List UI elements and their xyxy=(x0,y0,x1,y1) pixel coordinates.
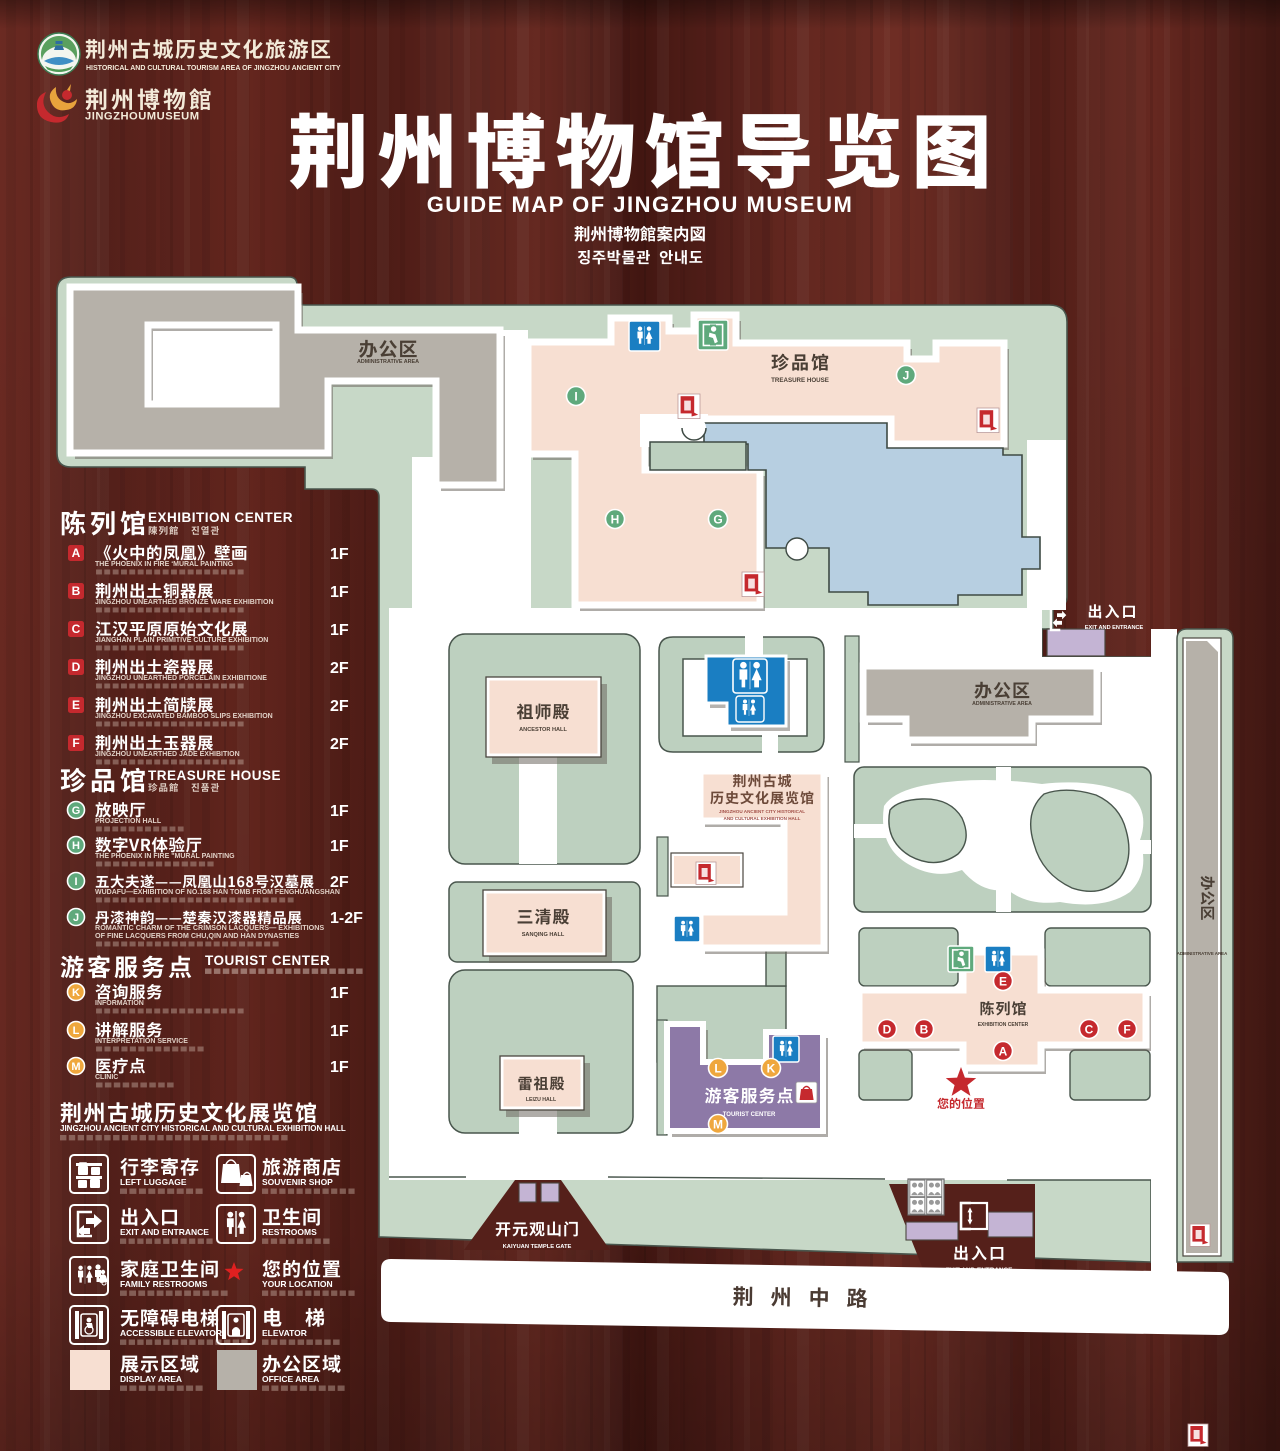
svg-text:EXIT AND ENTRANCE: EXIT AND ENTRANCE xyxy=(120,1227,209,1237)
svg-text:INTERPRETATION SERVICE: INTERPRETATION SERVICE xyxy=(95,1038,188,1045)
svg-text:1F: 1F xyxy=(330,803,349,820)
svg-text:SANQING HALL: SANQING HALL xyxy=(522,932,565,938)
svg-text:B: B xyxy=(920,1023,929,1037)
svg-text:H: H xyxy=(611,513,620,527)
svg-text:TOURIST CENTER: TOURIST CENTER xyxy=(205,953,330,968)
svg-text:2F: 2F xyxy=(330,736,349,753)
svg-text:WUDAFU—EXHIBITION OF NO.168 HA: WUDAFU—EXHIBITION OF NO.168 HAN TOMB FRO… xyxy=(95,889,340,896)
svg-text:JINGZHOUMUSEUM: JINGZHOUMUSEUM xyxy=(85,111,200,123)
svg-text:2F: 2F xyxy=(330,698,349,715)
svg-text:1F: 1F xyxy=(330,1023,349,1040)
svg-text:K: K xyxy=(767,1062,776,1076)
svg-text:M: M xyxy=(713,1118,723,1132)
svg-text:L: L xyxy=(714,1062,721,1076)
svg-text:A: A xyxy=(72,546,81,560)
svg-text:DISPLAY AREA: DISPLAY AREA xyxy=(120,1374,182,1384)
svg-text:1F: 1F xyxy=(330,584,349,601)
svg-text:GUIDE MAP OF JINGZHOU MUSEUM: GUIDE MAP OF JINGZHOU MUSEUM xyxy=(427,192,854,217)
svg-text:1F: 1F xyxy=(330,622,349,639)
svg-text:INFORMATION: INFORMATION xyxy=(95,1000,144,1007)
svg-text:G: G xyxy=(72,805,81,817)
svg-text:1F: 1F xyxy=(330,985,349,1002)
svg-text:ANCESTOR HALL: ANCESTOR HALL xyxy=(519,727,567,733)
svg-text:JINGZHOU UNEARTHED BRONZE WARE: JINGZHOU UNEARTHED BRONZE WARE EXHIBITIO… xyxy=(95,599,274,606)
svg-text:RESTROOMS: RESTROOMS xyxy=(262,1227,317,1237)
svg-text:TREASURE HOUSE: TREASURE HOUSE xyxy=(148,768,281,783)
svg-text:JIANGHAN PLAIN PRIMITIVE CULTU: JIANGHAN PLAIN PRIMITIVE CULTURE EXHIBIT… xyxy=(95,637,268,644)
svg-text:OF FINE LACQUERS FROM CHU,QIN: OF FINE LACQUERS FROM CHU,QIN AND HAN DY… xyxy=(95,931,299,940)
svg-text:I: I xyxy=(574,390,577,404)
svg-text:ELEVATOR: ELEVATOR xyxy=(262,1328,307,1338)
svg-text:CLINIC: CLINIC xyxy=(95,1074,118,1081)
svg-text:J: J xyxy=(903,369,910,383)
svg-text:ADMINISTRATIVE AREA: ADMINISTRATIVE AREA xyxy=(357,359,419,365)
svg-text:E: E xyxy=(72,698,80,712)
svg-text:F: F xyxy=(72,736,79,750)
svg-text:EXIT AND ENTRANCE: EXIT AND ENTRANCE xyxy=(946,1267,1014,1274)
svg-text:OFFICE AREA: OFFICE AREA xyxy=(262,1374,319,1384)
svg-text:2F: 2F xyxy=(330,660,349,677)
svg-text:PROJECTION HALL: PROJECTION HALL xyxy=(95,818,162,825)
svg-text:ADMINISTRATIVE AREA: ADMINISTRATIVE AREA xyxy=(1177,951,1228,956)
svg-text:F: F xyxy=(1123,1023,1130,1037)
svg-text:1F: 1F xyxy=(330,546,349,563)
svg-text:K: K xyxy=(72,987,80,999)
svg-text:C: C xyxy=(1085,1023,1094,1037)
svg-text:I: I xyxy=(74,876,77,888)
svg-text:SOUVENIR SHOP: SOUVENIR SHOP xyxy=(262,1177,333,1187)
svg-text:B: B xyxy=(72,584,81,598)
svg-text:ACCESSIBLE ELEVATOR: ACCESSIBLE ELEVATOR xyxy=(120,1328,222,1338)
svg-text:YOUR LOCATION: YOUR LOCATION xyxy=(262,1279,333,1289)
svg-text:LEFT LUGGAGE: LEFT LUGGAGE xyxy=(120,1177,187,1187)
svg-text:JINGZHOU ANCIENT CITY HISTORIC: JINGZHOU ANCIENT CITY HISTORICAL xyxy=(719,809,805,814)
svg-text:1F: 1F xyxy=(330,1059,349,1076)
svg-text:THE PHOENIX IN FIRE "MURAL PAI: THE PHOENIX IN FIRE "MURAL PAINTING xyxy=(95,853,235,860)
svg-text:1-2F: 1-2F xyxy=(330,910,363,927)
svg-text:L: L xyxy=(73,1025,80,1037)
svg-text:JINGZHOU ANCIENT CITY HISTORIC: JINGZHOU ANCIENT CITY HISTORICAL AND CUL… xyxy=(60,1124,346,1133)
svg-text:EXHIBITION CENTER: EXHIBITION CENTER xyxy=(978,1022,1029,1028)
svg-text:TOURIST CENTER: TOURIST CENTER xyxy=(723,1112,776,1118)
svg-text:LEIZU HALL: LEIZU HALL xyxy=(526,1097,557,1103)
svg-text:C: C xyxy=(72,622,81,636)
svg-text:G: G xyxy=(713,513,722,527)
svg-text:M: M xyxy=(71,1061,80,1073)
svg-text:JINGZHOU EXCAVATED BAMBOO SLIP: JINGZHOU EXCAVATED BAMBOO SLIPS EXHIBITI… xyxy=(95,713,273,720)
svg-text:H: H xyxy=(72,840,80,852)
svg-text:JINGZHOU UNEARTHED PORCELAIN E: JINGZHOU UNEARTHED PORCELAIN EXHIBITIONE xyxy=(95,675,267,682)
svg-text:ADMINISTRATIVE AREA: ADMINISTRATIVE AREA xyxy=(972,701,1032,707)
svg-text:FAMILY RESTROOMS: FAMILY RESTROOMS xyxy=(120,1279,208,1289)
svg-text:J: J xyxy=(73,912,79,924)
svg-text:D: D xyxy=(883,1023,892,1037)
svg-text:HISTORICAL AND CULTURAL TOURIS: HISTORICAL AND CULTURAL TOURISM AREA OF … xyxy=(86,65,341,72)
svg-text:D: D xyxy=(72,660,81,674)
svg-text:EXHIBITION CENTER: EXHIBITION CENTER xyxy=(148,510,293,525)
svg-text:A: A xyxy=(999,1045,1008,1059)
svg-text:E: E xyxy=(999,975,1007,989)
svg-text:1F: 1F xyxy=(330,838,349,855)
svg-text:THE PHOENIX IN FIRE ‘MURAL PAI: THE PHOENIX IN FIRE ‘MURAL PAINTING xyxy=(95,561,234,568)
svg-text:EXIT AND ENTRANCE: EXIT AND ENTRANCE xyxy=(1085,625,1144,631)
svg-text:KAIYUAN TEMPLE GATE: KAIYUAN TEMPLE GATE xyxy=(503,1244,572,1250)
svg-text:AND CULTURAL EXHIBITION HALL: AND CULTURAL EXHIBITION HALL xyxy=(724,816,801,821)
svg-text:JINGZHOU UNEARTHED JADE EXHIBI: JINGZHOU UNEARTHED JADE EXHIBITION xyxy=(95,751,240,758)
svg-text:TREASURE HOUSE: TREASURE HOUSE xyxy=(771,377,829,384)
